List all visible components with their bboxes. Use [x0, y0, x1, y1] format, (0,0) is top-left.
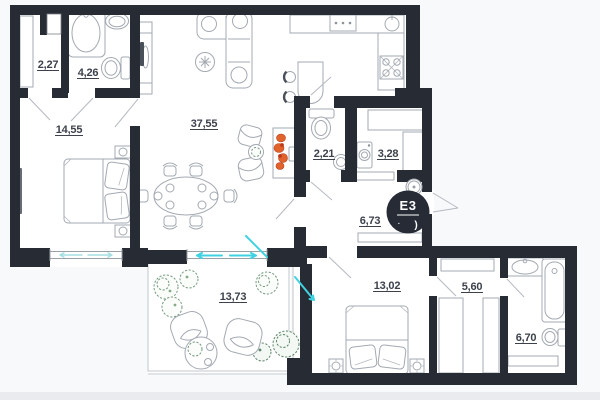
room-label-bathroom-bottom: 6,70 [516, 332, 537, 344]
fireplace [273, 128, 297, 178]
floor-plan-svg: 2,27 4,26 14,55 37,55 2,21 3,28 6,73 13,… [0, 0, 600, 400]
room-label-terrace: 13,73 [220, 291, 247, 303]
tv-screen [140, 42, 144, 66]
wall-niche [47, 14, 61, 34]
room-label-living-kitchen: 37,55 [191, 118, 218, 130]
logo-dot: · [398, 221, 400, 228]
logo-bracket: ) [414, 220, 417, 231]
nightstand [410, 359, 424, 373]
nightstand [329, 359, 343, 373]
plant [154, 275, 178, 299]
entry-closet-shelf [20, 16, 33, 87]
sofa-pillow [202, 17, 217, 32]
sofa-pillow [231, 67, 247, 83]
room-label-bathroom-top: 4,26 [78, 67, 99, 79]
nightstand [115, 146, 131, 158]
tv-console-living [139, 22, 152, 94]
cooktop-hob [380, 56, 403, 79]
room-label-walkin: 5,60 [462, 281, 483, 293]
plant [256, 272, 278, 294]
bathtub-bottom [542, 259, 567, 322]
kitchen-counter-right [378, 33, 404, 90]
dining-table [154, 177, 218, 215]
sofa-pillow [233, 14, 248, 29]
walkin-wardrobe-right [483, 298, 499, 373]
plant [180, 270, 198, 288]
room-label-hallway: 6,73 [360, 215, 381, 227]
bed-right [346, 306, 408, 374]
room-label-bedroom-left: 14,55 [56, 124, 83, 136]
developer-logo: E3 ) · [387, 191, 430, 234]
terrace-table [185, 337, 217, 369]
coffee-table [196, 53, 215, 72]
walkin-wardrobe-left [439, 298, 463, 373]
washing-machine [357, 142, 372, 168]
storage-shelf-top [368, 110, 425, 130]
plant [162, 297, 182, 317]
bottom-strip [0, 392, 600, 400]
room-label-closet-entry: 2,27 [38, 59, 59, 71]
room-label-bedroom-right: 13,02 [374, 280, 401, 292]
bed-left [64, 159, 130, 223]
toilet-top [102, 57, 131, 79]
sink-bottom [507, 258, 543, 276]
side-table [249, 145, 264, 160]
bathtub-top [68, 10, 105, 57]
plant [273, 331, 299, 357]
logo-text: E3 [400, 198, 417, 213]
room-label-storage: 3,28 [378, 148, 399, 160]
nightstand [115, 225, 131, 237]
room-label-wc: 2,21 [314, 148, 335, 160]
hall-radiator [358, 233, 422, 242]
storage-shelf-right [403, 132, 425, 171]
kitchen-counter-top [290, 15, 404, 33]
toilet-bottom [542, 329, 567, 347]
floor-plan-screenshot: 2,27 4,26 14,55 37,55 2,21 3,28 6,73 13,… [0, 0, 600, 400]
walkin-shelf-top [441, 259, 494, 271]
towel-radiator [508, 356, 558, 366]
